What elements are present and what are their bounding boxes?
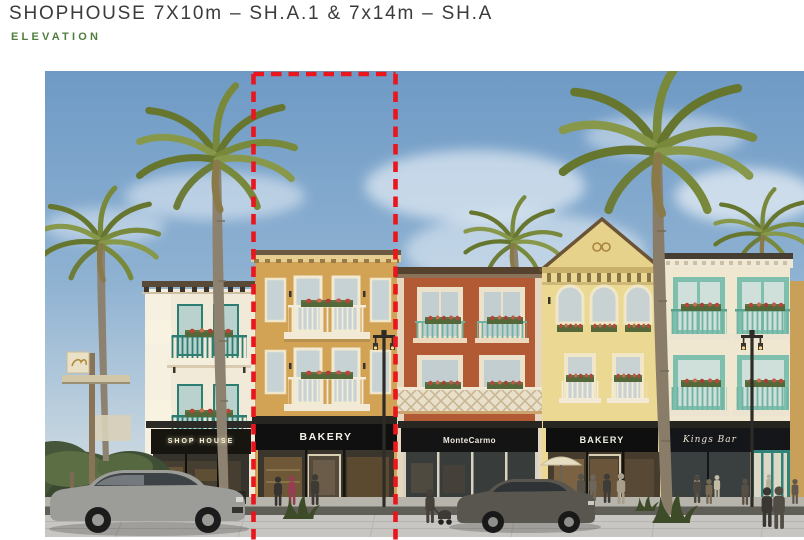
elevation-rendering: SHOP HOUSE BAKERY MonteCarmo BAKERY King… bbox=[45, 71, 804, 537]
building-highlight-tan bbox=[251, 250, 401, 503]
building-right-mint bbox=[659, 253, 794, 503]
building-terracotta bbox=[394, 267, 545, 503]
page-subtitle: ELEVATION bbox=[11, 31, 101, 43]
page-title: SHOPHOUSE 7X10m – SH.A.1 & 7x14m – SH.A bbox=[9, 3, 493, 25]
building-yellow-gable bbox=[540, 219, 664, 503]
building-right-sliver bbox=[790, 281, 804, 503]
